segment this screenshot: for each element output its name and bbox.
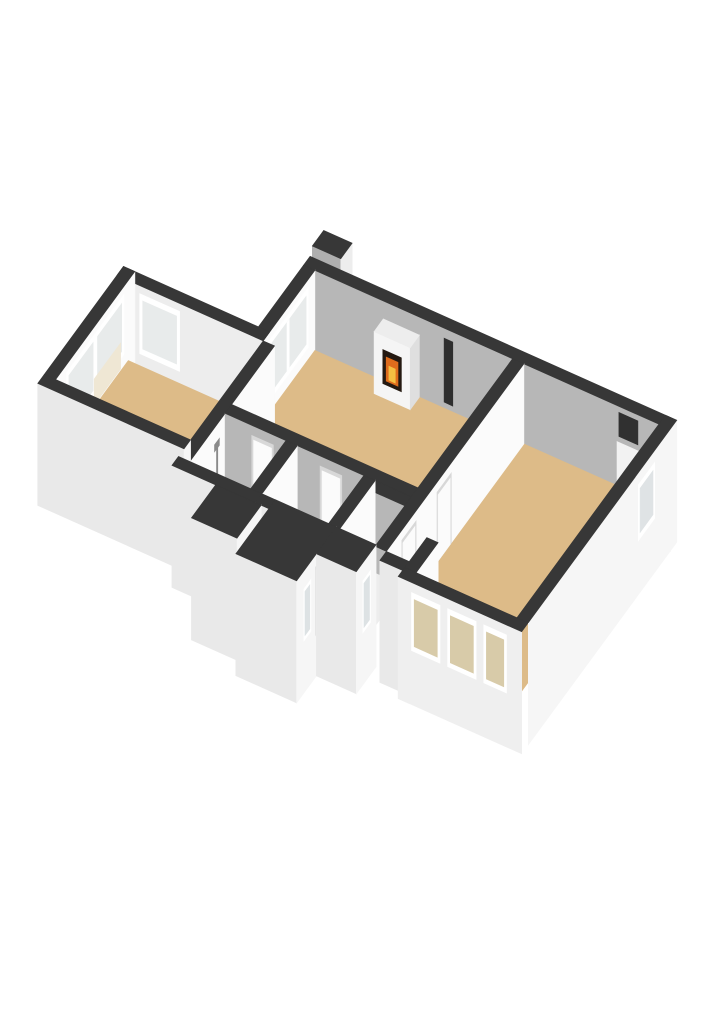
bay-window-glass-3 [486, 632, 503, 687]
bay-window-glass-2 [450, 616, 473, 673]
storage-block-side [191, 518, 237, 660]
floorplan-3d-render [0, 0, 724, 1024]
side-window-glass [364, 576, 370, 628]
shower-pole [217, 445, 218, 477]
side-block-side [316, 554, 356, 694]
fireplace-flame-core [389, 366, 395, 383]
floorplan-page [0, 0, 724, 1024]
living-window-mullion [287, 320, 289, 371]
bay-window-glass-1 [414, 600, 437, 657]
entrance-window-glass [305, 585, 310, 636]
vent-niche [444, 338, 453, 406]
